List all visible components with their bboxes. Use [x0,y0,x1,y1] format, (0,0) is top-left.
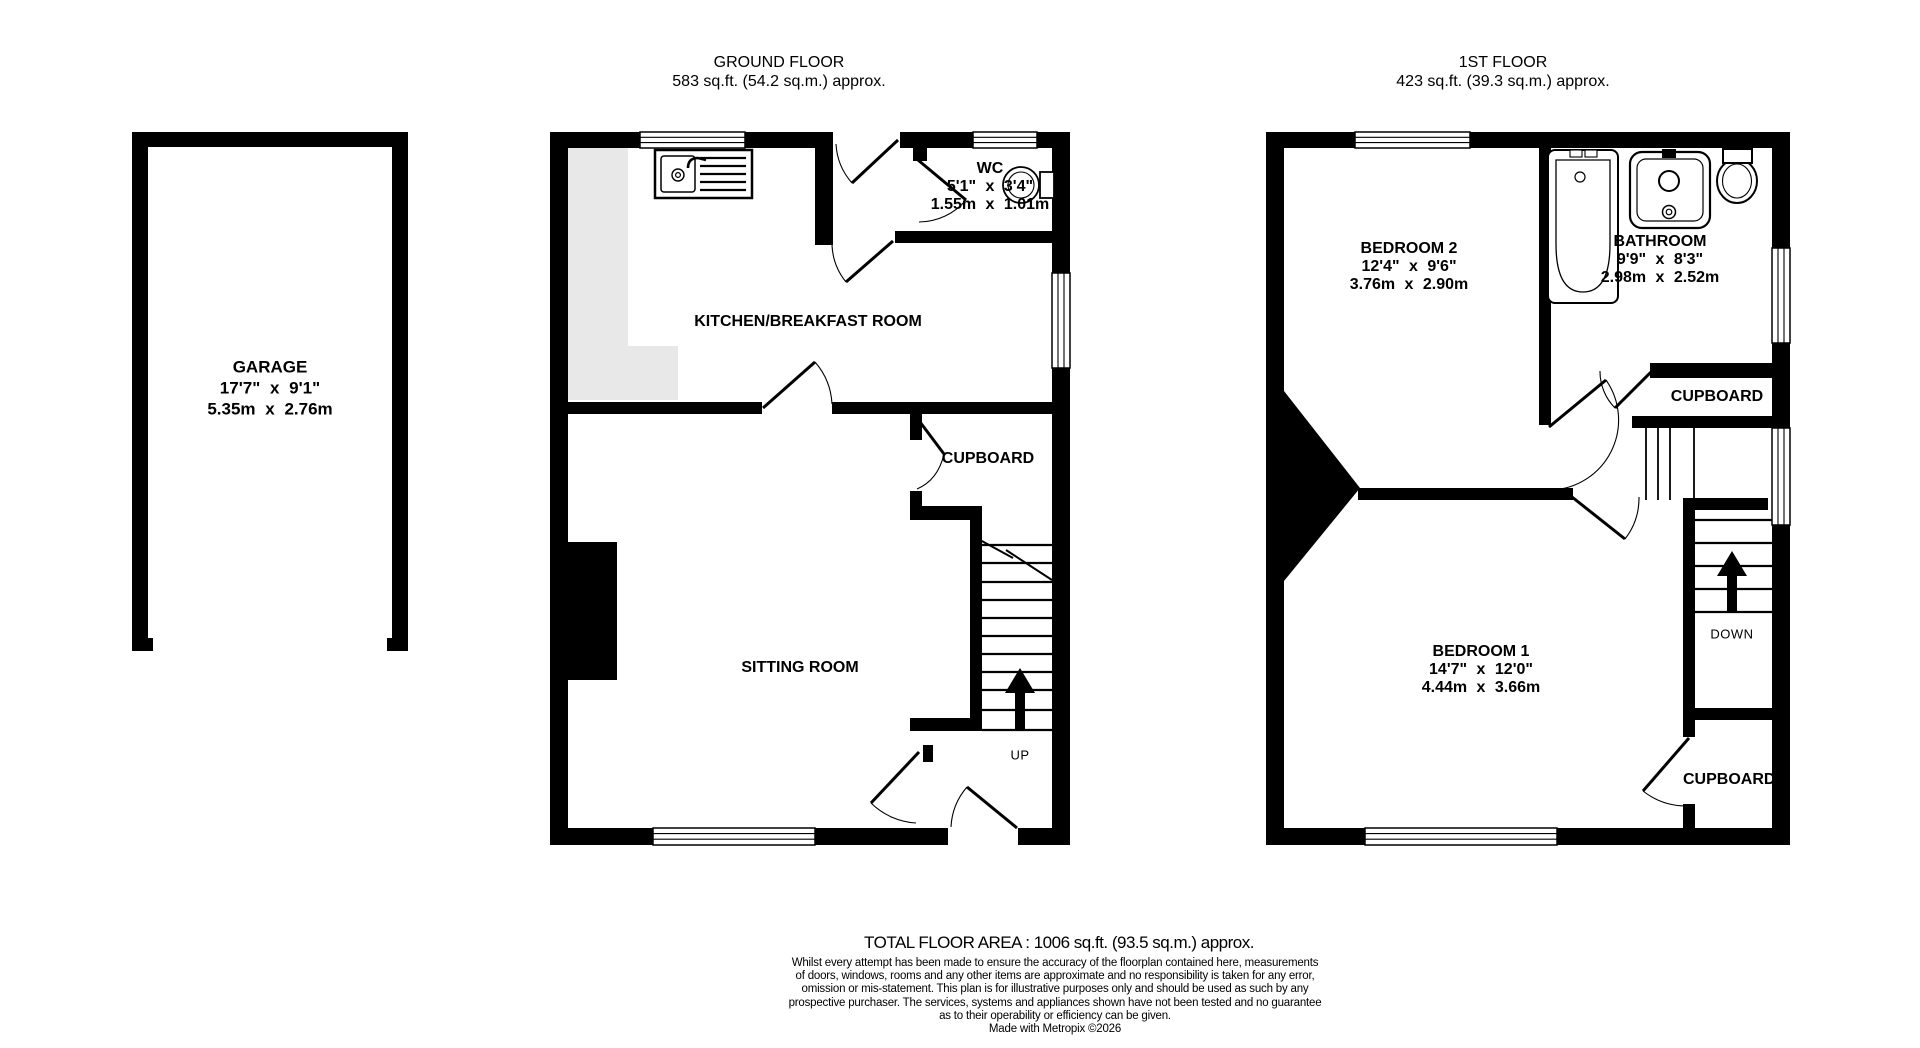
garage-label: GARAGE 17'7" x 9'1" 5.35m x 2.76m [207,357,332,420]
room-name: BEDROOM 1 [1422,643,1541,661]
first-floor-title: 1ST FLOOR 423 sq.ft. (39.3 sq.m.) approx… [1396,53,1609,91]
bedroom1-label: BEDROOM 1 14'7" x 12'0" 4.44m x 3.66m [1422,643,1541,697]
disclaimer-line: Whilst every attempt has been made to en… [789,957,1322,970]
disclaimer-line: of doors, windows, rooms and any other i… [789,970,1322,983]
ff-wall-left [1266,132,1284,845]
bedroom2-door [1549,380,1619,490]
disclaimer-line: omission or mis-statement. This plan is … [789,983,1322,996]
sitting-room-side-window [1052,273,1070,368]
room-dims-ft: 9'9" x 8'3" [1601,251,1720,269]
total-floor-area: TOTAL FLOOR AREA : 1006 sq.ft. (93.5 sq.… [864,933,1254,953]
gf-cupboard-stub-top [910,414,922,440]
room-dims-m: 4.44m x 3.66m [1422,679,1541,697]
ground-floor-title: GROUND FLOOR 583 sq.ft. (54.2 sq.m.) app… [672,53,885,91]
gf-hall-bottom-wall [910,718,982,731]
room-name: BEDROOM 2 [1350,240,1469,258]
gf-divider-wall-left [568,402,762,414]
room-dims-ft: 14'7" x 12'0" [1422,661,1541,679]
kitchen-window [640,132,745,148]
wash-basin [1630,149,1710,228]
ff-wall-top [1266,132,1790,148]
garage-door-stub-left [132,638,153,651]
room-dims-ft: 12'4" x 9'6" [1350,258,1469,276]
room-dims-ft: 5'1" x 3'4" [931,178,1050,196]
ff-stair-top-wall [1683,498,1768,510]
counter-foot [568,346,678,400]
up-arrow [1005,668,1035,731]
room-dims-ft: 17'7" x 9'1" [207,378,332,399]
first-cupboard-top-label: CUPBOARD [1671,388,1763,406]
first-doors [1549,371,1689,806]
ff-cupboard2-stub-bottom [1683,804,1695,830]
ff-divider-wall [1358,488,1573,500]
bathroom-label: BATHROOM 9'9" x 8'3" 2.98m x 2.52m [1601,233,1720,287]
sitting-room-label: SITTING ROOM [741,659,858,677]
room-name: SITTING ROOM [741,659,858,677]
first-stairs [1646,428,1772,612]
room-dims-m: 3.76m x 2.90m [1350,276,1469,294]
disclaimer-line: prospective purchaser. The services, sys… [789,997,1322,1010]
first-floor-title-area: 423 sq.ft. (39.3 sq.m.) approx. [1396,72,1609,91]
disclaimer-line: as to their operability or efficiency ca… [789,1010,1322,1023]
room-dims-m: 5.35m x 2.76m [207,399,332,420]
ff-stair-left-wall [1683,498,1695,720]
ground-floor-title-area: 583 sq.ft. (54.2 sq.m.) approx. [672,72,885,91]
first-cupboard-bottom-label: CUPBOARD [1683,771,1772,788]
ff-cupboard2-stub-top [1683,720,1695,737]
ground-stairs [980,540,1052,731]
gf-wc-bottom-wall [895,231,1070,243]
room-name: KITCHEN/BREAKFAST ROOM [694,313,922,331]
room-name: BATHROOM [1601,233,1720,251]
floorplan-drawing [0,0,1920,1048]
gf-wall-left [550,132,568,845]
bathroom-door [1600,371,1652,408]
ff-stairwell-bottom-wall [1683,708,1788,720]
sitting-hall-door [871,752,919,823]
gf-chimney-breast [568,542,617,680]
gf-hall-wall [815,148,833,245]
ff-wall-right-1 [1772,132,1790,248]
ground-floor-title-name: GROUND FLOOR [672,53,885,72]
floorplan-page: GROUND FLOOR 583 sq.ft. (54.2 sq.m.) app… [0,0,1920,1048]
wc-window [973,132,1037,148]
ff-wall-right-3 [1772,525,1790,845]
toilet-tank [1723,149,1752,163]
landing-side-window [1772,428,1790,525]
kitchen-sink [655,150,752,198]
gf-wc-door-stub [913,148,927,161]
bathroom-toilet [1717,149,1757,203]
metropix-credit: Made with Metropix ©2026 [789,1023,1322,1036]
gf-cupboard-bottom-wall [910,506,972,520]
disclaimer: Whilst every attempt has been made to en… [789,957,1322,1036]
ff-cupboard-bottom-wall [1632,416,1790,428]
bedroom2-label: BEDROOM 2 12'4" x 9'6" 3.76m x 2.90m [1350,240,1469,294]
gf-divider-wall-right [832,402,1057,414]
gf-door-stub [923,745,933,762]
down-label: DOWN [1710,627,1753,642]
garage-wall-left [132,132,148,651]
ff-chimney-wedge [1284,391,1360,581]
kitchen-sitting-door [763,362,832,408]
back-door [836,140,898,183]
kitchen-label: KITCHEN/BREAKFAST ROOM [694,313,922,331]
room-name: WC [931,160,1050,178]
room-name: CUPBOARD [1671,388,1763,406]
bedroom2-window [1355,132,1470,148]
front-door [951,787,1017,828]
room-name: GARAGE [207,357,332,378]
room-dims-m: 1.55m x 1.01m [931,196,1050,214]
ff-bathroom-bottom-wall [1650,363,1790,378]
kitchen-hall-door [832,241,893,282]
garage-wall-right [392,132,408,651]
bathroom-side-window [1772,248,1790,343]
garage-door-stub-right [387,638,408,651]
ff-wall-right-2 [1772,343,1790,428]
wc-label: WC 5'1" x 3'4" 1.55m x 1.01m [931,160,1050,214]
garage-wall-top [132,132,408,147]
ground-cupboard-label: CUPBOARD [942,450,1034,468]
bedroom1-door [1572,497,1639,539]
room-name: CUPBOARD [942,450,1034,468]
first-floor-title-name: 1ST FLOOR [1396,53,1609,72]
bedroom1-window [1365,828,1557,845]
up-label: UP [1010,748,1029,763]
gf-wall-bottom-right [1018,828,1070,845]
sitting-room-front-window [653,828,815,845]
down-arrow [1717,551,1747,612]
room-dims-m: 2.98m x 2.52m [1601,269,1720,287]
